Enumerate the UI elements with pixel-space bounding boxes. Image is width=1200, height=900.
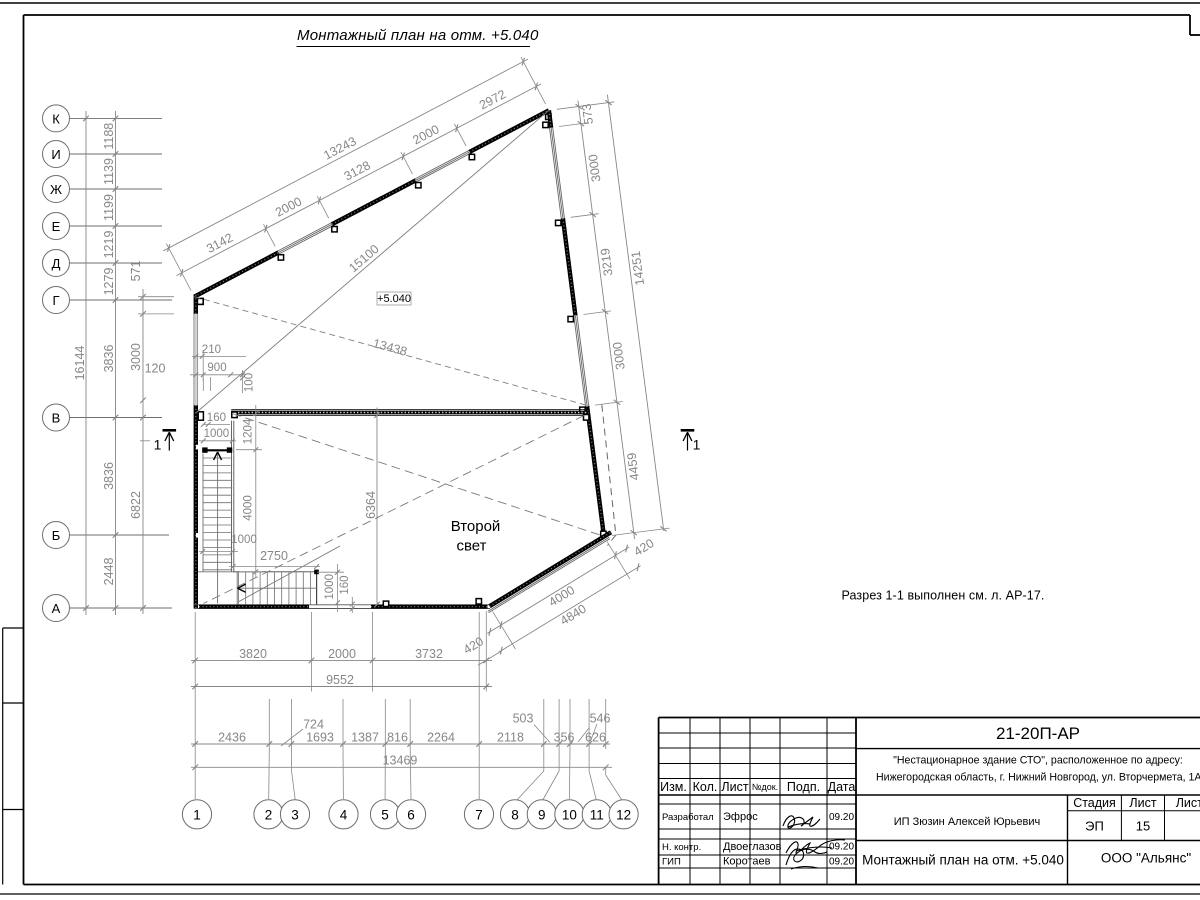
svg-text:12: 12	[616, 807, 631, 822]
svg-text:13469: 13469	[383, 754, 418, 768]
svg-text:№док.: №док.	[752, 782, 778, 792]
svg-text:Разработал: Разработал	[662, 812, 714, 823]
svg-text:9: 9	[538, 807, 546, 822]
svg-text:5: 5	[381, 807, 389, 822]
svg-text:1139: 1139	[102, 158, 116, 185]
svg-text:2: 2	[265, 807, 273, 822]
svg-text:Ж: Ж	[50, 182, 62, 197]
svg-text:09.20: 09.20	[829, 842, 854, 853]
svg-text:160: 160	[339, 575, 351, 594]
svg-text:1188: 1188	[102, 123, 116, 150]
svg-text:626: 626	[585, 730, 606, 744]
svg-text:573: 573	[579, 103, 596, 126]
svg-text:1279: 1279	[102, 268, 116, 296]
svg-text:100: 100	[243, 373, 255, 392]
svg-text:1219: 1219	[102, 231, 116, 259]
svg-text:4: 4	[340, 807, 348, 822]
svg-text:2448: 2448	[102, 558, 116, 586]
svg-text:Д: Д	[52, 256, 61, 271]
svg-text:Двоеглазов: Двоеглазов	[723, 841, 782, 853]
svg-text:Листов: Листов	[1176, 796, 1200, 810]
svg-text:09.20: 09.20	[829, 856, 854, 867]
svg-text:15: 15	[1136, 819, 1150, 834]
svg-text:900: 900	[207, 362, 226, 374]
svg-text:1000: 1000	[231, 534, 257, 546]
svg-text:Монтажный план на отм. +5.040: Монтажный план на отм. +5.040	[297, 27, 539, 44]
svg-text:09.20: 09.20	[829, 812, 854, 823]
svg-text:Коротаев: Коротаев	[723, 856, 771, 868]
svg-text:3836: 3836	[102, 462, 116, 490]
svg-text:Монтажный план на отм. +5.040: Монтажный план на отм. +5.040	[862, 853, 1064, 868]
svg-text:ЭП: ЭП	[1085, 819, 1104, 834]
svg-text:Дата: Дата	[828, 780, 856, 794]
svg-text:Стадия: Стадия	[1073, 796, 1116, 810]
svg-text:2750: 2750	[260, 549, 288, 563]
svg-text:3732: 3732	[415, 647, 443, 661]
svg-text:2000: 2000	[328, 647, 356, 661]
svg-text:3836: 3836	[102, 345, 116, 373]
svg-text:3: 3	[291, 807, 299, 822]
svg-text:1000: 1000	[324, 574, 336, 600]
svg-text:Б: Б	[52, 528, 61, 543]
svg-text:160: 160	[207, 412, 226, 424]
svg-text:9552: 9552	[326, 673, 354, 687]
svg-text:ИП Зюзин Алексей Юрьевич: ИП Зюзин Алексей Юрьевич	[894, 816, 1041, 828]
svg-text:Подп.: Подп.	[787, 780, 820, 794]
svg-text:ООО "Альянс": ООО "Альянс"	[1101, 851, 1191, 866]
svg-text:4000: 4000	[242, 495, 254, 521]
svg-text:2264: 2264	[427, 730, 455, 744]
svg-text:21-20П-АР: 21-20П-АР	[996, 724, 1080, 743]
svg-text:Разрез 1-1 выполнен см. л. АР-: Разрез 1-1 выполнен см. л. АР-17.	[842, 589, 1045, 603]
svg-text:7: 7	[475, 807, 483, 822]
svg-text:6364: 6364	[364, 491, 378, 519]
svg-text:10: 10	[562, 807, 577, 822]
svg-text:Эфрос: Эфрос	[723, 811, 758, 823]
svg-text:2118: 2118	[497, 730, 524, 744]
svg-text:724: 724	[303, 717, 324, 731]
svg-text:16144: 16144	[73, 346, 87, 381]
svg-text:1: 1	[693, 437, 701, 453]
svg-text:свет: свет	[456, 538, 486, 555]
svg-text:503: 503	[513, 711, 534, 725]
svg-text:1199: 1199	[102, 194, 116, 221]
svg-text:6822: 6822	[129, 491, 143, 519]
svg-text:Нижегородская область, г. Нижн: Нижегородская область, г. Нижний Новгоро…	[876, 772, 1200, 784]
svg-text:816: 816	[387, 730, 408, 744]
svg-text:И: И	[51, 147, 60, 162]
svg-text:Н. контр.: Н. контр.	[662, 842, 701, 853]
svg-text:Изм.: Изм.	[660, 780, 687, 794]
svg-text:210: 210	[202, 344, 221, 356]
svg-text:Кол.: Кол.	[693, 780, 718, 794]
svg-text:1204: 1204	[242, 418, 254, 444]
svg-text:1: 1	[154, 437, 162, 453]
svg-text:В: В	[52, 411, 61, 426]
svg-text:ГИП: ГИП	[662, 857, 681, 868]
svg-text:3820: 3820	[239, 647, 267, 661]
svg-text:Лист: Лист	[721, 780, 748, 794]
svg-text:"Нестационарное здание СТО", р: "Нестационарное здание СТО", расположенн…	[893, 755, 1183, 767]
svg-text:Г: Г	[52, 293, 59, 308]
svg-text:К: К	[52, 111, 60, 126]
svg-text:11: 11	[590, 807, 604, 822]
svg-text:1693: 1693	[306, 730, 334, 744]
svg-text:2436: 2436	[218, 730, 246, 744]
svg-text:571: 571	[129, 261, 143, 282]
svg-text:1000: 1000	[204, 428, 230, 440]
svg-text:8: 8	[511, 807, 519, 822]
svg-text:1387: 1387	[351, 730, 379, 744]
svg-text:+5.040: +5.040	[377, 293, 411, 305]
svg-text:6: 6	[407, 807, 415, 822]
svg-text:356: 356	[554, 730, 575, 744]
svg-text:546: 546	[590, 711, 611, 725]
svg-text:Лист: Лист	[1129, 796, 1156, 810]
svg-text:120: 120	[145, 361, 166, 375]
svg-text:Е: Е	[52, 219, 61, 234]
svg-text:А: А	[52, 601, 61, 616]
svg-text:3000: 3000	[129, 343, 143, 371]
svg-text:1: 1	[193, 807, 201, 822]
svg-text:Второй: Второй	[451, 518, 501, 535]
